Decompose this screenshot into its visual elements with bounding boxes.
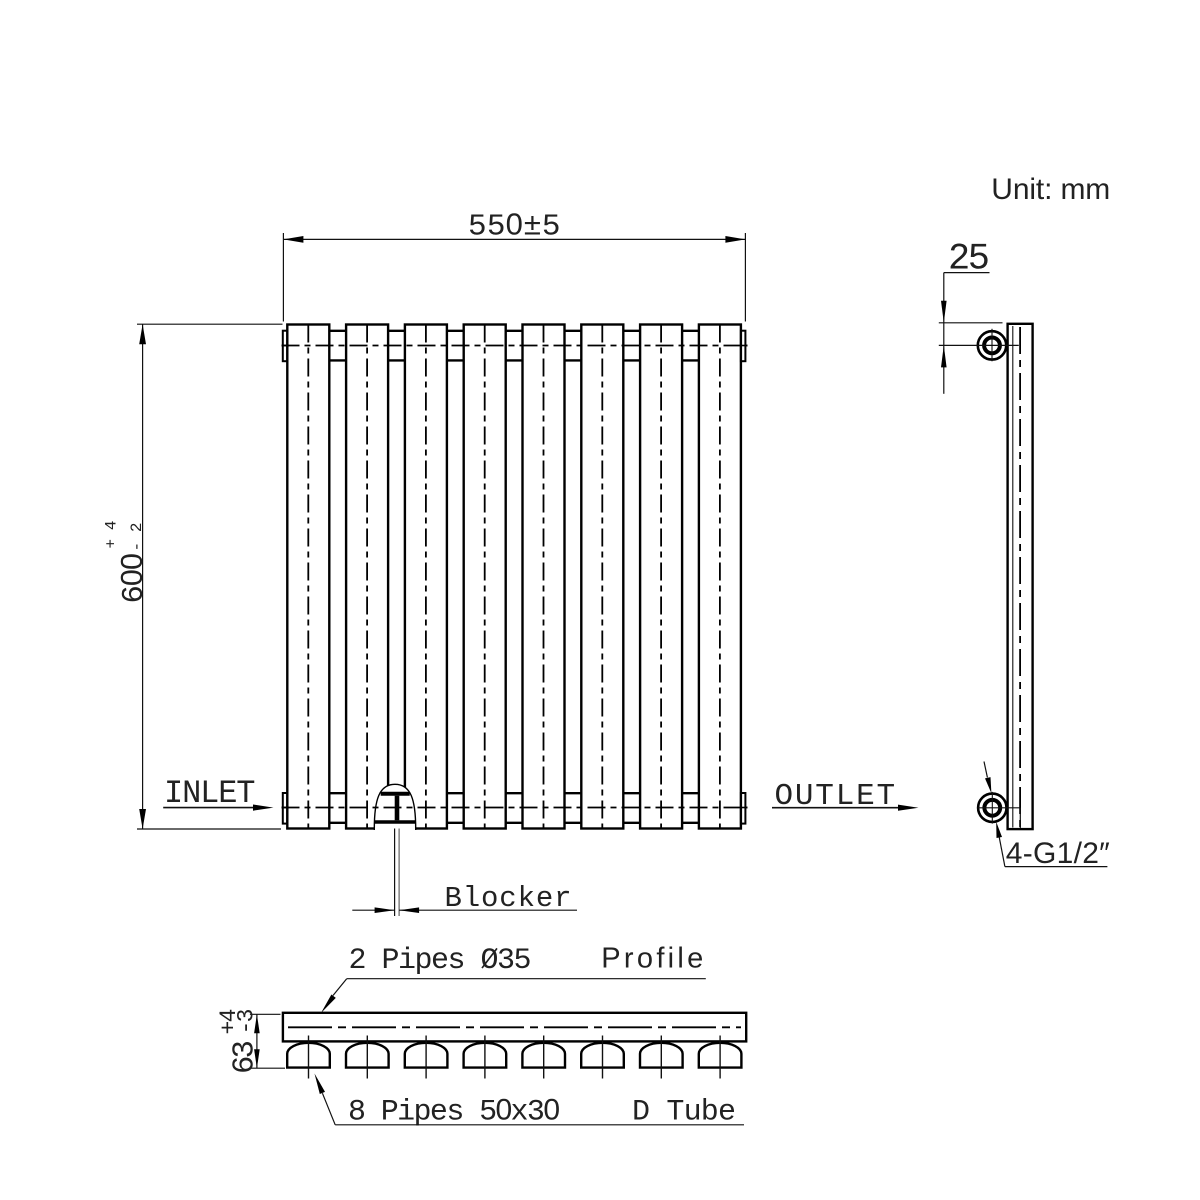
svg-text:63: 63 (229, 1040, 263, 1074)
svg-text:-3: -3 (234, 1009, 260, 1035)
svg-text:4-G1/2″: 4-G1/2″ (1006, 837, 1110, 870)
svg-text:Profile: Profile (601, 943, 703, 975)
svg-text:2 Pipes Ø35: 2 Pipes Ø35 (349, 944, 532, 978)
svg-text:Blocker: Blocker (445, 882, 572, 915)
svg-text:8 Pipes 50x30: 8 Pipes 50x30 (348, 1094, 560, 1130)
svg-text:550±5: 550±5 (468, 207, 561, 245)
svg-text:D Tube: D Tube (632, 1096, 736, 1130)
svg-text:25: 25 (948, 239, 990, 281)
svg-text:INLET: INLET (164, 775, 256, 812)
svg-text:OUTLET: OUTLET (775, 779, 896, 814)
svg-text:600: 600 (115, 553, 152, 604)
svg-text:Unit: mm: Unit: mm (991, 173, 1110, 206)
